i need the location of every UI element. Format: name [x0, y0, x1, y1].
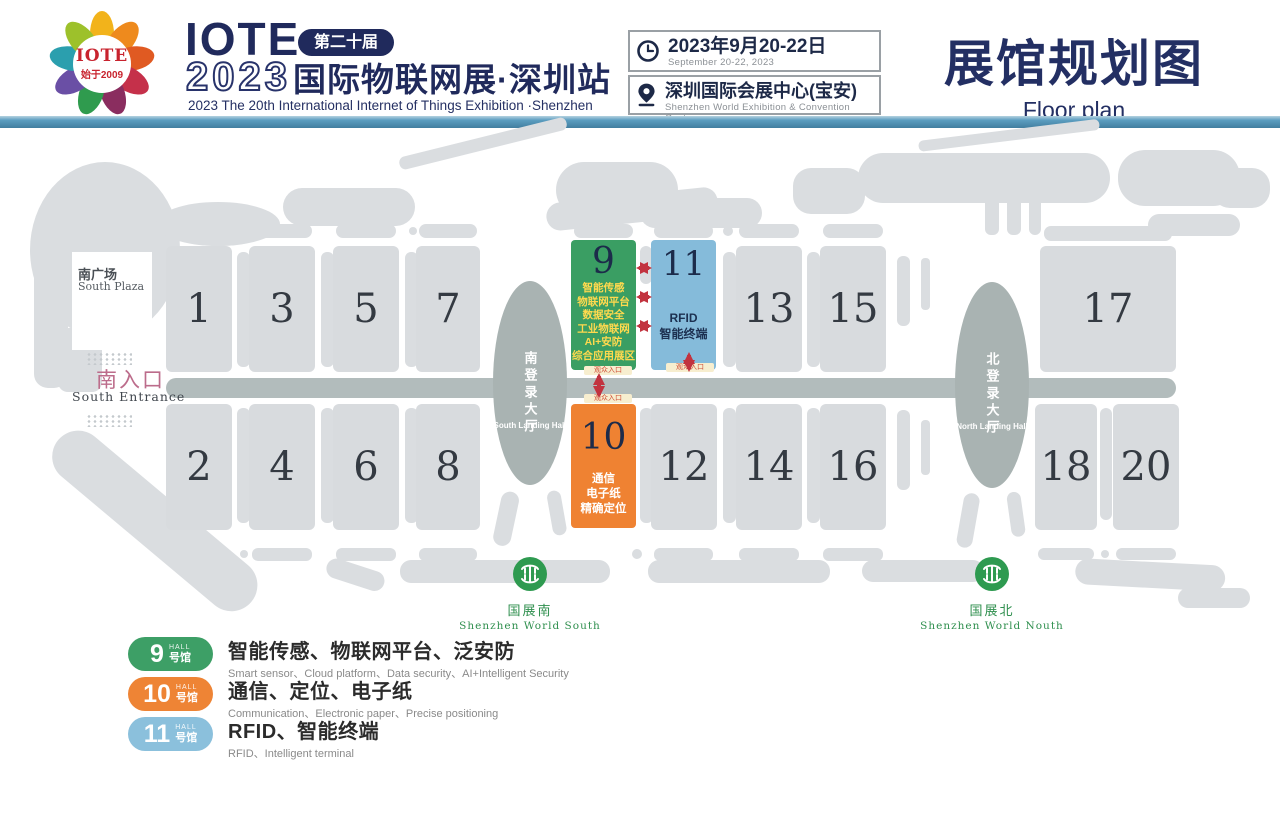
hall-10: 10 通信 电子纸 精确定位: [571, 404, 636, 528]
hall-18: 18: [1035, 404, 1097, 530]
metro-logo-icon: [974, 556, 1010, 592]
legend-pill-10: 10 HALL 号馆: [128, 677, 213, 711]
hall-13: 13: [736, 246, 802, 372]
south-plaza-label-en: South Plaza: [78, 280, 144, 293]
hall-6: 6: [333, 404, 399, 530]
north-landing-hall: 北登录大厅 North Landing Hall: [955, 282, 1029, 488]
metro-north-label-cn: 国展北: [917, 600, 1067, 619]
hall-7: 7: [416, 246, 480, 372]
hall-1: 1: [166, 246, 232, 372]
visitor-entrance-tag: 观众入口: [584, 366, 632, 375]
hall-14: 14: [736, 404, 802, 530]
hall-17: 17: [1040, 246, 1176, 372]
hall-3: 3: [249, 246, 315, 372]
metro-logo-icon: [512, 556, 548, 592]
metro-north-label-en: Shenzhen World Nouth: [917, 620, 1067, 632]
hall-11: 11 RFID 智能终端: [651, 240, 716, 370]
south-landing-hall: 南登录大厅 South Landing Hall: [493, 281, 567, 485]
hall-15: 15: [820, 246, 886, 372]
hall-12: 12: [651, 404, 717, 530]
hall-4: 4: [249, 404, 315, 530]
legend-pill-9: 9 HALL 号馆: [128, 637, 213, 671]
metro-south-label-en: Shenzhen World South: [455, 620, 605, 632]
legend-title-9: 智能传感、物联网平台、泛安防: [228, 635, 828, 664]
legend-pill-11: 11 HALL 号馆: [128, 717, 213, 751]
metro-station-south: 国展南 Shenzhen World South: [455, 556, 605, 632]
metro-station-north: 国展北 Shenzhen World Nouth: [917, 556, 1067, 632]
hall-9: 9 智能传感 物联网平台 数据安全 工业物联网 AI+安防 综合应用展区: [571, 240, 636, 370]
hall-8: 8: [416, 404, 480, 530]
plaza-dots: [86, 414, 132, 427]
hall-2: 2: [166, 404, 232, 530]
legend-subtitle-11: RFID、Intelligent terminal: [228, 745, 828, 761]
visitor-entrance-tag: 观众入口: [584, 394, 632, 403]
floor-plan-poster: IOTE 始于2009 IOTE 第二十届 2023 国际物联网展·深圳站 20…: [0, 0, 1280, 831]
legend-title-10: 通信、定位、电子纸: [228, 675, 828, 704]
hall-16: 16: [820, 404, 886, 530]
metro-south-label-cn: 国展南: [455, 600, 605, 619]
hall-5: 5: [333, 246, 399, 372]
visitor-entrance-tag: 观众入口: [666, 363, 714, 372]
south-entrance-label-en: South Entrance: [72, 389, 185, 404]
legend-title-11: RFID、智能终端: [228, 715, 828, 744]
hall-20: 20: [1113, 404, 1179, 530]
